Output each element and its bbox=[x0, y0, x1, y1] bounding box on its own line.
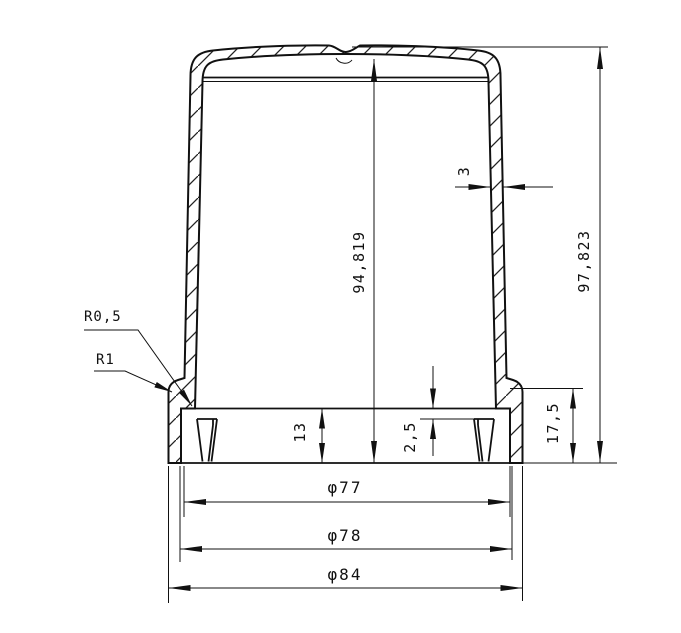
apex-notch-inner-edge bbox=[336, 58, 352, 63]
arrowhead bbox=[169, 585, 191, 591]
dim-label-dia84: φ84 bbox=[328, 565, 363, 584]
dim-label-radius-small: R0,5 bbox=[84, 309, 122, 325]
arrowhead bbox=[430, 419, 436, 439]
dim-label-dia78: φ78 bbox=[328, 526, 363, 545]
dim-label-rib-offset: 2,5 bbox=[401, 421, 419, 453]
arrowhead bbox=[501, 585, 523, 591]
dim-label-height-overall: 97,823 bbox=[575, 229, 593, 292]
cap-engineering-drawing: R0,5 R1 3 94,819 97,823 13 2,5 17,5 φ77 … bbox=[0, 0, 681, 633]
drawing-svg: R0,5 R1 3 94,819 97,823 13 2,5 17,5 φ77 … bbox=[0, 0, 681, 633]
arrowhead bbox=[597, 47, 603, 69]
dim-label-radius-large: R1 bbox=[96, 352, 115, 368]
arrowhead bbox=[184, 499, 206, 505]
arrowhead bbox=[488, 499, 510, 505]
cap-section-outline bbox=[169, 45, 523, 463]
arrowhead bbox=[503, 184, 525, 190]
arrowhead bbox=[371, 59, 377, 81]
left-rib bbox=[197, 419, 217, 462]
dim-label-base-height: 17,5 bbox=[544, 402, 562, 444]
dim-label-wall-thickness: 3 bbox=[455, 166, 473, 177]
dim-label-dia77: φ77 bbox=[328, 478, 363, 497]
arrowhead bbox=[490, 546, 512, 552]
arrowhead bbox=[319, 409, 325, 429]
arrowhead bbox=[597, 441, 603, 463]
arrowhead bbox=[371, 441, 377, 463]
arrowhead bbox=[570, 443, 576, 463]
arrowhead bbox=[570, 389, 576, 409]
arrowhead bbox=[469, 184, 491, 190]
arrowhead bbox=[319, 443, 325, 463]
arrowhead bbox=[430, 389, 436, 409]
dim-label-skirt-depth: 13 bbox=[291, 421, 309, 442]
right-rib bbox=[474, 419, 494, 462]
dim-label-height-inner: 94,819 bbox=[350, 230, 368, 293]
arrowhead bbox=[180, 546, 202, 552]
